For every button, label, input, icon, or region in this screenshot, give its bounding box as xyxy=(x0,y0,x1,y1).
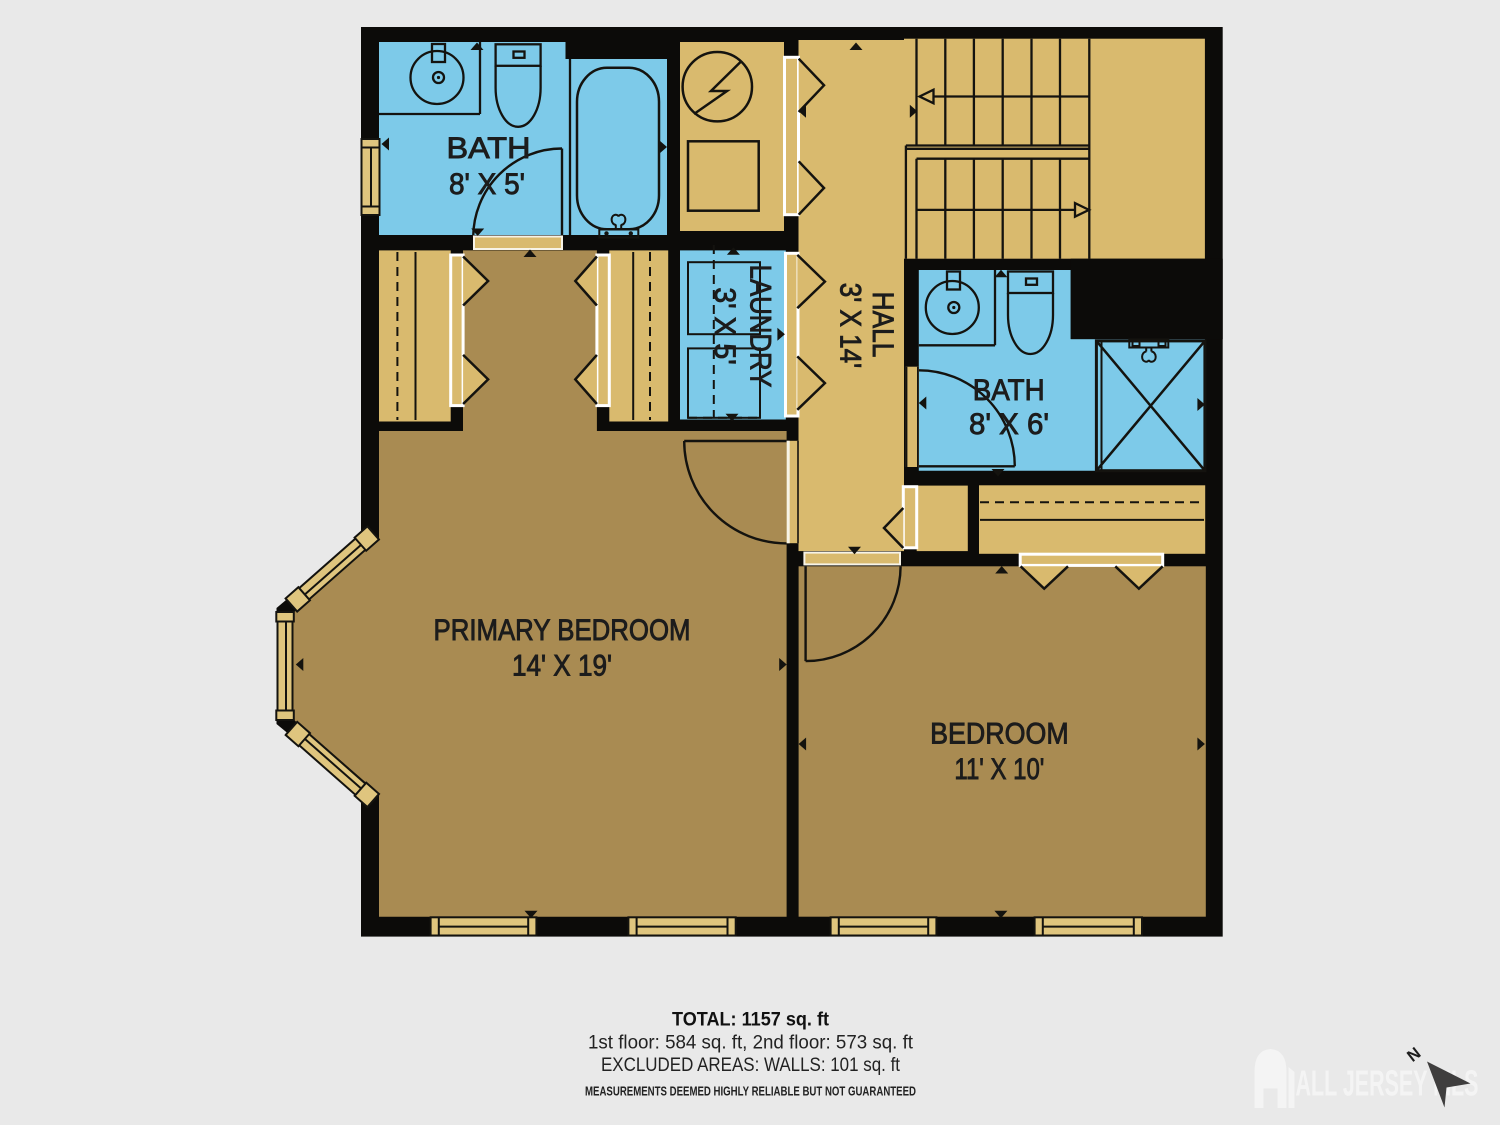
svg-text:HALL: HALL xyxy=(866,292,899,358)
svg-text:1st floor: 584 sq. ft, 2nd flo: 1st floor: 584 sq. ft, 2nd floor: 573 sq… xyxy=(588,1033,914,1054)
svg-text:MEASUREMENTS DEEMED HIGHLY REL: MEASUREMENTS DEEMED HIGHLY RELIABLE BUT … xyxy=(585,1085,916,1099)
svg-text:EXCLUDED AREAS: WALLS: 101 sq.: EXCLUDED AREAS: WALLS: 101 sq. ft xyxy=(601,1055,901,1076)
svg-text:8' X 6': 8' X 6' xyxy=(969,408,1049,441)
svg-text:BEDROOM: BEDROOM xyxy=(930,717,1069,750)
svg-text:PRIMARY BEDROOM: PRIMARY BEDROOM xyxy=(434,614,691,647)
svg-text:11' X 10': 11' X 10' xyxy=(954,753,1044,786)
svg-text:3' X 5': 3' X 5' xyxy=(708,287,741,364)
svg-text:14' X 19': 14' X 19' xyxy=(512,650,612,683)
svg-text:BATH: BATH xyxy=(447,132,531,165)
svg-text:8' X 5': 8' X 5' xyxy=(449,168,525,201)
svg-text:BATH: BATH xyxy=(973,374,1045,407)
svg-text:LAUNDRY: LAUNDRY xyxy=(744,265,777,388)
svg-text:3' X 14': 3' X 14' xyxy=(834,283,867,368)
svg-text:TOTAL: 1157 sq. ft: TOTAL: 1157 sq. ft xyxy=(672,1010,830,1031)
